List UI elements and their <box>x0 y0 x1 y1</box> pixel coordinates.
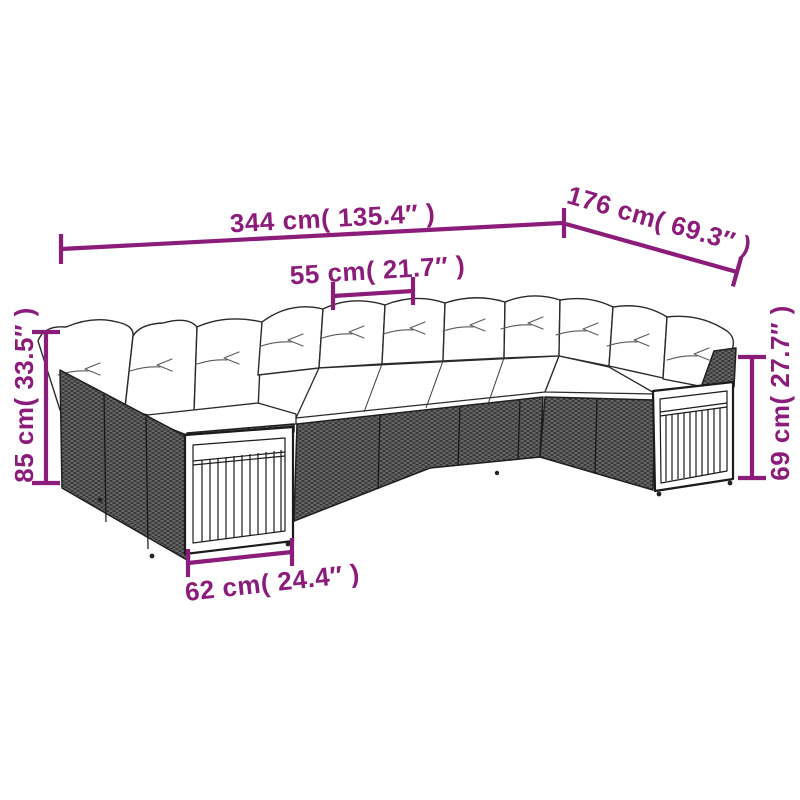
dimension-line <box>188 552 292 563</box>
dim-overall-depth: 176 cm( 69.3″ ) <box>564 180 755 287</box>
dim-back-height: 85 cm( 33.5″ ) <box>9 307 60 483</box>
dim-arm-depth-label: 62 cm( 24.4″ ) <box>183 558 361 607</box>
dim-seat-width-label: 55 cm( 21.7″ ) <box>289 250 466 291</box>
armrest-panel-left <box>185 427 293 554</box>
dim-arm-height-label: 69 cm( 27.7″ ) <box>765 305 795 481</box>
product-dimension-figure: 344 cm( 135.4″ ) 176 cm( 69.3″ ) 55 cm( … <box>0 0 800 800</box>
armrest-panel-right <box>653 382 733 491</box>
dim-back-height-label: 85 cm( 33.5″ ) <box>9 307 39 483</box>
sofa-illustration <box>38 296 736 560</box>
dimension-line <box>333 291 413 296</box>
dim-overall-width: 344 cm( 135.4″ ) <box>61 198 564 264</box>
dim-arm-height: 69 cm( 27.7″ ) <box>738 305 795 481</box>
sofa-dimension-diagram: 344 cm( 135.4″ ) 176 cm( 69.3″ ) 55 cm( … <box>0 0 800 800</box>
